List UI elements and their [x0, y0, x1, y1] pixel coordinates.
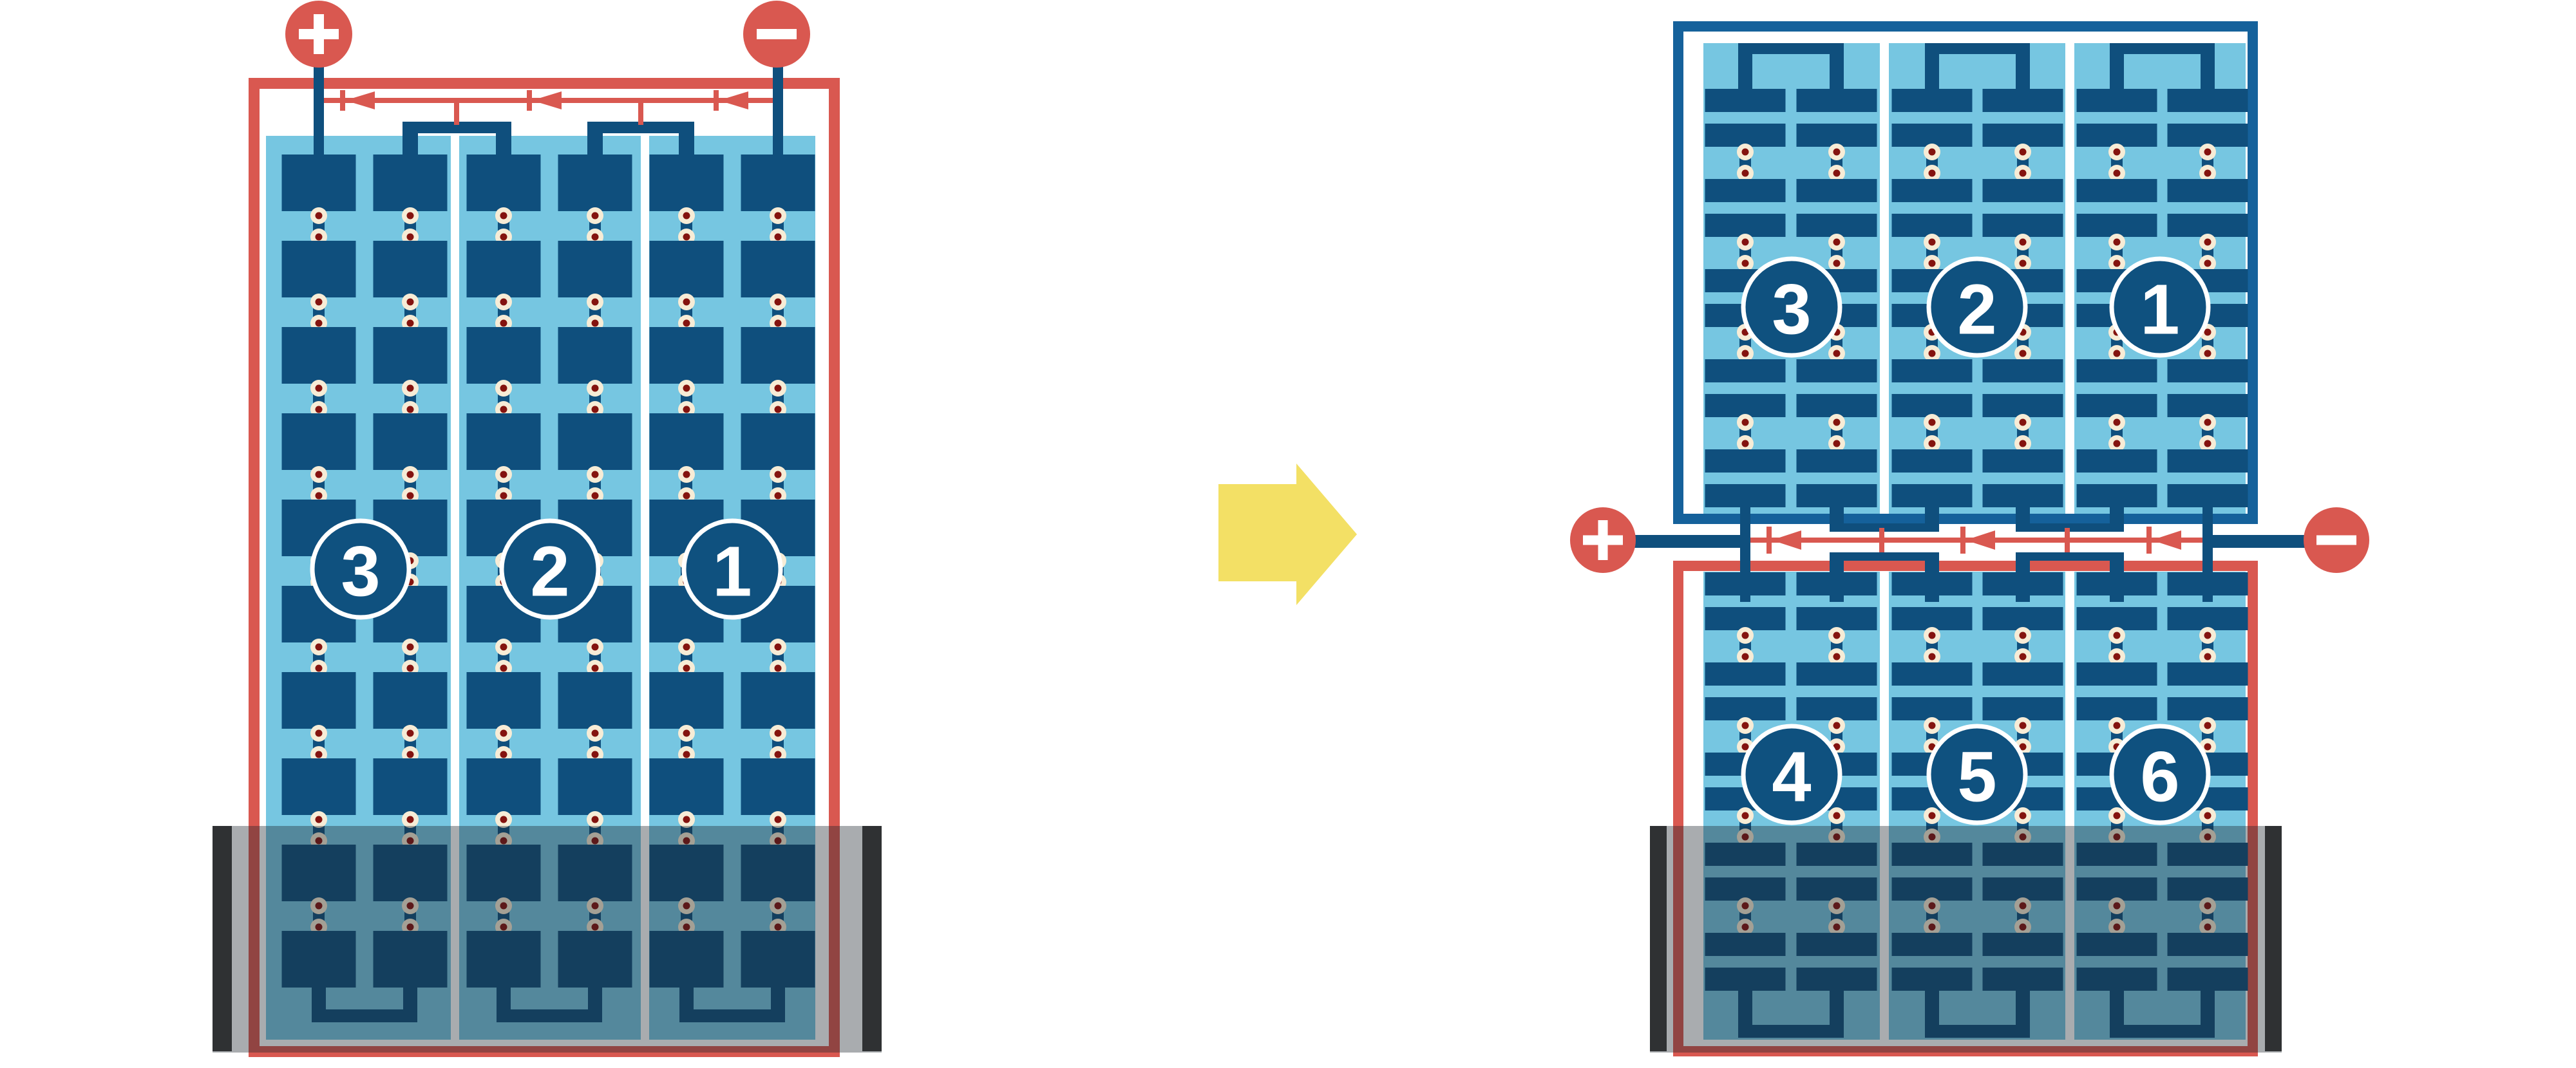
badge-number: 5 — [1957, 738, 1996, 817]
solder-dot-inner — [1742, 350, 1749, 357]
solder-dot-inner — [2114, 350, 2121, 357]
solar-cell — [1983, 697, 2063, 720]
badge-number: 2 — [1957, 270, 1996, 350]
current-tick — [340, 90, 345, 111]
plus-icon — [1598, 520, 1608, 560]
solar-cell — [2168, 179, 2248, 202]
solar-cell — [1892, 394, 1973, 417]
solder-dot-inner — [1833, 239, 1841, 246]
positive-terminal — [285, 1, 352, 68]
solder-dot-inner — [500, 385, 507, 392]
solar-cell — [1705, 214, 1786, 237]
badge-number: 1 — [2140, 270, 2179, 350]
solder-dot-inner — [2114, 440, 2121, 447]
solder-dot-inner — [1833, 653, 1841, 660]
solder-dot-inner — [592, 492, 599, 500]
solder-dot-inner — [316, 644, 323, 651]
solder-dot-inner — [2204, 170, 2211, 177]
solar-cell — [741, 327, 815, 384]
solder-dot-inner — [775, 492, 782, 500]
badge-number: 2 — [530, 532, 569, 612]
module-number-badge: 2 — [502, 521, 598, 617]
negative-terminal — [743, 1, 810, 68]
solder-dot-inner — [1833, 440, 1841, 447]
solder-dot-inner — [500, 751, 507, 758]
solder-dot-inner — [1742, 812, 1749, 820]
solar-cell — [650, 758, 724, 815]
solar-cell — [2168, 662, 2248, 686]
solder-dot-inner — [500, 644, 507, 651]
solar-cell — [2077, 394, 2157, 417]
solar-cell — [650, 413, 724, 470]
solar-cell — [467, 758, 541, 815]
solder-dot-inner — [2204, 260, 2211, 267]
solder-dot-inner — [316, 492, 323, 500]
solder-dot-inner — [2204, 812, 2211, 820]
solar-cell — [1797, 394, 1877, 417]
solar-cell — [2168, 607, 2248, 630]
solar-cell — [1797, 179, 1877, 202]
solder-dot-inner — [407, 730, 414, 737]
solder-dot-inner — [2114, 419, 2121, 426]
solder-dot-inner — [2114, 170, 2121, 177]
solar-cell — [467, 241, 541, 297]
current-tick — [527, 90, 532, 111]
solar-cell — [558, 758, 632, 815]
positive-stem — [314, 64, 324, 188]
solder-dot-inner — [775, 320, 782, 327]
negative-terminal — [2304, 507, 2369, 573]
solder-dot-inner — [316, 212, 323, 220]
solder-dot-inner — [592, 385, 599, 392]
solar-cell — [467, 672, 541, 729]
current-drop — [454, 100, 459, 125]
solder-dot-inner — [683, 471, 690, 478]
solar-cell — [1983, 449, 2063, 473]
solder-dot-inner — [2114, 812, 2121, 820]
solder-dot-inner — [2204, 419, 2211, 426]
right-top-panel: 321 — [1673, 21, 2258, 548]
solder-dot-inner — [683, 644, 690, 651]
solder-dot-inner — [1833, 812, 1841, 820]
solder-dot-inner — [775, 665, 782, 672]
solder-dot-inner — [1929, 632, 1936, 639]
right-arrow-icon — [1218, 464, 1357, 605]
solar-cell — [558, 413, 632, 470]
solar-cell — [2168, 697, 2248, 720]
solar-cell — [2077, 449, 2157, 473]
solder-dot-inner — [316, 665, 323, 672]
solar-cell — [1705, 359, 1786, 382]
solder-dot-inner — [407, 644, 414, 651]
solder-dot-inner — [2020, 653, 2027, 660]
solder-dot-inner — [683, 320, 690, 327]
solder-dot-inner — [683, 730, 690, 737]
solar-cell — [1705, 394, 1786, 417]
jumper-bar — [1830, 552, 1939, 561]
positive-stem — [1740, 547, 1750, 602]
badge-number: 1 — [712, 532, 752, 612]
solar-cell — [650, 241, 724, 297]
solder-dot-inner — [775, 212, 782, 220]
solar-cell — [1797, 359, 1877, 382]
solar-cell — [650, 672, 724, 729]
jumper-leg — [679, 122, 694, 162]
solder-dot-inner — [592, 234, 599, 241]
solder-dot-inner — [2204, 440, 2211, 447]
solar-cell — [1892, 449, 1973, 473]
solar-cell — [467, 413, 541, 470]
solder-dot-inner — [2114, 239, 2121, 246]
solder-dot-inner — [407, 665, 414, 672]
solder-dot-inner — [407, 406, 414, 413]
solar-cell — [1892, 662, 1973, 686]
column-separator — [2065, 43, 2074, 514]
badge-number: 4 — [1772, 738, 1811, 817]
current-drop — [2065, 528, 2070, 554]
flood-water-overlay — [213, 826, 882, 1053]
module-number-badge: 5 — [1929, 726, 2025, 823]
solder-dot-inner — [775, 471, 782, 478]
solder-dot-inner — [1742, 722, 1749, 729]
solder-dot-inner — [316, 234, 323, 241]
solder-dot-inner — [316, 730, 323, 737]
solder-dot-inner — [500, 299, 507, 306]
solder-dot-inner — [592, 406, 599, 413]
solar-cell — [282, 241, 356, 297]
jumper-leg — [1830, 43, 1844, 111]
solder-dot-inner — [407, 299, 414, 306]
solder-dot-inner — [316, 299, 323, 306]
solder-dot-inner — [1929, 239, 1936, 246]
minus-icon — [757, 29, 797, 39]
solar-cell — [1983, 124, 2063, 147]
solar-cell — [2077, 214, 2157, 237]
solar-cell — [1983, 359, 2063, 382]
badge-number: 3 — [1772, 270, 1811, 350]
solder-dot-inner — [683, 492, 690, 500]
solder-dot-inner — [2114, 722, 2121, 729]
solder-dot-inner — [500, 406, 507, 413]
solder-dot-inner — [316, 320, 323, 327]
solder-dot-inner — [592, 320, 599, 327]
solder-dot-inner — [1742, 632, 1749, 639]
current-tick — [2146, 527, 2152, 554]
jumper-leg — [402, 122, 418, 162]
solar-cell — [558, 672, 632, 729]
solder-dot-inner — [683, 212, 690, 220]
solder-dot-inner — [683, 299, 690, 306]
solar-cell — [1983, 179, 2063, 202]
solder-dot-inner — [1833, 419, 1841, 426]
solar-cell — [1983, 214, 2063, 237]
solar-cell — [2077, 124, 2157, 147]
solder-dot-inner — [1929, 440, 1936, 447]
solar-cell — [1705, 449, 1786, 473]
jumper-leg — [2016, 43, 2030, 111]
solder-dot-inner — [500, 320, 507, 327]
solder-dot-inner — [592, 299, 599, 306]
solar-cell — [374, 155, 448, 211]
solder-dot-inner — [775, 234, 782, 241]
badge-number: 6 — [2140, 738, 2179, 817]
solar-cell — [1797, 449, 1877, 473]
solder-dot-inner — [1833, 149, 1841, 156]
module-number-badge: 1 — [2112, 259, 2208, 355]
solder-dot-inner — [316, 471, 323, 478]
solder-dot-inner — [2020, 260, 2027, 267]
solar-cell — [467, 327, 541, 384]
solder-dot-inner — [500, 471, 507, 478]
solder-dot-inner — [1833, 170, 1841, 177]
solar-cell — [1797, 124, 1877, 147]
solar-cell — [2168, 359, 2248, 382]
solar-cell — [2077, 662, 2157, 686]
solar-cell — [1983, 394, 2063, 417]
solar-cell — [374, 241, 448, 297]
solder-dot-inner — [775, 816, 782, 823]
solder-dot-inner — [316, 406, 323, 413]
solder-dot-inner — [683, 406, 690, 413]
solar-cell — [1892, 607, 1973, 630]
negative-stem — [773, 64, 783, 188]
solar-cell — [1797, 214, 1877, 237]
solar-cell — [2077, 607, 2157, 630]
diagram-canvas: 321 321 456 — [0, 0, 2576, 1068]
module-number-badge: 3 — [312, 521, 409, 617]
solder-dot-inner — [407, 212, 414, 220]
solar-cell — [282, 327, 356, 384]
solder-dot-inner — [2204, 653, 2211, 660]
solder-dot-inner — [2020, 149, 2027, 156]
solder-dot-inner — [407, 816, 414, 823]
solder-dot-inner — [2204, 722, 2211, 729]
solder-dot-inner — [2204, 632, 2211, 639]
solder-dot-inner — [683, 751, 690, 758]
solder-dot-inner — [1929, 260, 1936, 267]
solar-cell — [1892, 359, 1973, 382]
solar-cell — [1705, 607, 1786, 630]
solder-dot-inner — [1742, 170, 1749, 177]
solar-cell — [650, 327, 724, 384]
current-arrowhead-icon — [1965, 530, 1995, 550]
solder-dot-inner — [316, 816, 323, 823]
module-number-badge: 4 — [1743, 726, 1840, 823]
solder-dot-inner — [1833, 350, 1841, 357]
solder-dot-inner — [316, 751, 323, 758]
solar-cell — [741, 758, 815, 815]
solder-dot-inner — [1929, 653, 1936, 660]
solder-dot-inner — [500, 816, 507, 823]
solder-dot-inner — [2020, 812, 2027, 820]
solar-cell — [374, 413, 448, 470]
solder-dot-inner — [2020, 350, 2027, 357]
solder-dot-inner — [2114, 149, 2121, 156]
solder-dot-inner — [1833, 260, 1841, 267]
jumper-leg — [2201, 43, 2215, 111]
solder-dot-inner — [2204, 744, 2211, 751]
solder-dot-inner — [500, 730, 507, 737]
solar-cell — [1797, 662, 1877, 686]
solder-dot-inner — [1929, 812, 1936, 820]
solder-dot-inner — [683, 816, 690, 823]
solder-dot-inner — [1742, 260, 1749, 267]
solder-dot-inner — [2020, 170, 2027, 177]
right-bottom-panel: 456 — [1650, 547, 2282, 1056]
solder-dot-inner — [1929, 419, 1936, 426]
solder-dot-inner — [592, 471, 599, 478]
positive-bus-bar — [1634, 535, 1750, 548]
solder-dot-inner — [2020, 419, 2027, 426]
solar-cell — [467, 155, 541, 211]
solar-panel-reconfiguration-diagram: 321 321 456 — [0, 0, 2576, 1068]
solar-cell — [2168, 124, 2248, 147]
solder-dot-inner — [683, 234, 690, 241]
solder-dot-inner — [775, 644, 782, 651]
jumper-bar — [1926, 43, 2029, 54]
column-separator — [1880, 43, 1889, 514]
solder-dot-inner — [407, 492, 414, 500]
solder-dot-inner — [1929, 149, 1936, 156]
solar-cell — [1892, 124, 1973, 147]
solar-cell — [1705, 124, 1786, 147]
solder-dot-inner — [683, 385, 690, 392]
solar-cell — [374, 672, 448, 729]
solder-dot-inner — [1833, 722, 1841, 729]
solar-cell — [1983, 607, 2063, 630]
solar-cell — [741, 672, 815, 729]
current-direction-wire — [1750, 527, 2202, 554]
solar-cell — [2168, 394, 2248, 417]
jumper-leg — [496, 122, 511, 162]
negative-stem — [2202, 547, 2213, 602]
solder-dot-inner — [316, 385, 323, 392]
current-arrowhead-icon — [2152, 530, 2181, 550]
solder-dot-inner — [1833, 632, 1841, 639]
solder-dot-inner — [407, 234, 414, 241]
solder-dot-inner — [1742, 419, 1749, 426]
module-number-badge: 3 — [1743, 259, 1840, 355]
solar-cell — [1705, 179, 1786, 202]
transform-arrow — [1218, 464, 1357, 605]
solder-dot-inner — [592, 212, 599, 220]
solar-cell — [282, 672, 356, 729]
plus-icon — [314, 14, 324, 54]
solar-cell — [558, 155, 632, 211]
solder-dot-inner — [592, 730, 599, 737]
solar-cell — [1797, 697, 1877, 720]
solar-cell — [1705, 697, 1786, 720]
positive-terminal — [1570, 507, 1636, 573]
jumper-leg — [587, 122, 603, 162]
minus-icon — [2316, 536, 2356, 545]
solder-dot-inner — [2114, 632, 2121, 639]
flood-water-overlay — [1650, 826, 2282, 1053]
solar-cell — [2077, 359, 2157, 382]
solder-dot-inner — [592, 751, 599, 758]
solder-dot-inner — [775, 730, 782, 737]
solder-dot-inner — [407, 385, 414, 392]
negative-bus-bar — [2202, 535, 2306, 548]
solder-dot-inner — [1742, 239, 1749, 246]
solder-dot-inner — [2114, 653, 2121, 660]
solar-cell — [374, 758, 448, 815]
solder-dot-inner — [775, 385, 782, 392]
solder-dot-inner — [2020, 632, 2027, 639]
solar-cell — [1705, 662, 1786, 686]
current-tick — [1960, 527, 1965, 554]
solder-dot-inner — [500, 492, 507, 500]
solder-dot-inner — [775, 751, 782, 758]
jumper-bar — [2016, 552, 2124, 561]
solder-dot-inner — [1929, 722, 1936, 729]
solar-cell — [558, 327, 632, 384]
jumper-bar — [1739, 43, 1843, 54]
solar-cell — [741, 241, 815, 297]
solder-dot-inner — [2020, 239, 2027, 246]
solder-dot-inner — [592, 816, 599, 823]
solar-cell — [1797, 607, 1877, 630]
solder-dot-inner — [683, 665, 690, 672]
solder-dot-inner — [2114, 260, 2121, 267]
solar-cell — [282, 758, 356, 815]
solar-cell — [2077, 179, 2157, 202]
solder-dot-inner — [2020, 722, 2027, 729]
solder-dot-inner — [500, 234, 507, 241]
solder-dot-inner — [592, 665, 599, 672]
solder-dot-inner — [2204, 350, 2211, 357]
current-tick — [714, 90, 719, 111]
solar-cell — [650, 155, 724, 211]
solder-dot-inner — [775, 299, 782, 306]
solder-dot-inner — [407, 471, 414, 478]
module-number-badge: 2 — [1929, 259, 2025, 355]
solar-cell — [558, 241, 632, 297]
solder-dot-inner — [500, 212, 507, 220]
solar-cell — [2168, 449, 2248, 473]
solar-cell — [741, 413, 815, 470]
solder-dot-inner — [2204, 239, 2211, 246]
current-tick — [1766, 527, 1772, 554]
solder-dot-inner — [592, 644, 599, 651]
current-drop — [638, 100, 643, 125]
solar-cell — [1983, 662, 2063, 686]
solar-cell — [374, 327, 448, 384]
current-arrowhead-icon — [1772, 530, 1801, 550]
solar-cell — [1892, 697, 1973, 720]
module-number-badge: 6 — [2112, 726, 2208, 823]
solder-dot-inner — [1929, 170, 1936, 177]
solder-dot-inner — [2204, 149, 2211, 156]
solar-cell — [1892, 179, 1973, 202]
solder-dot-inner — [1742, 149, 1749, 156]
module-number-badge: 1 — [684, 521, 781, 617]
solder-dot-inner — [407, 751, 414, 758]
solar-cell — [2077, 697, 2157, 720]
jumper-leg — [2110, 43, 2124, 111]
solar-cell — [282, 413, 356, 470]
solder-dot-inner — [1742, 440, 1749, 447]
solder-dot-inner — [407, 320, 414, 327]
jumper-leg — [1925, 43, 1939, 111]
solar-cell — [1892, 214, 1973, 237]
solder-dot-inner — [775, 406, 782, 413]
solar-cell — [2168, 214, 2248, 237]
solder-dot-inner — [2020, 440, 2027, 447]
jumper-bar — [2110, 43, 2214, 54]
solder-dot-inner — [1742, 653, 1749, 660]
jumper-leg — [1738, 43, 1752, 111]
